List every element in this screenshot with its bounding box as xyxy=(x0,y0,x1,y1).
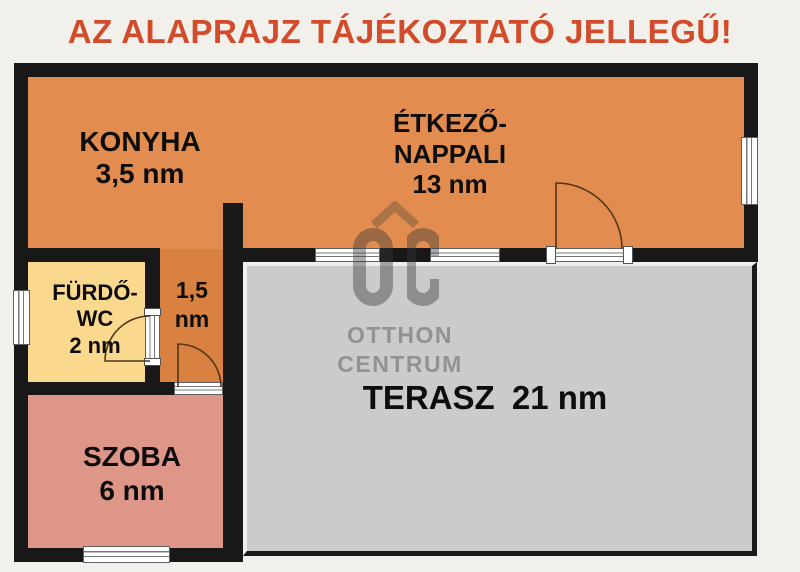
room-label-kozlekedo: 1,5 nm xyxy=(162,276,222,334)
watermark-text-otthon: OTTHON xyxy=(330,322,470,349)
floorplan-image: AZ ALAPRAJZ TÁJÉKOZTATÓ JELLEGŰ! KONYHA … xyxy=(0,0,800,572)
door-stop-furdo-bottom xyxy=(144,358,161,366)
room-label-konyha: KONYHA 3,5 nm xyxy=(40,126,240,190)
wall-hall-terasz xyxy=(223,203,243,562)
wall-top xyxy=(14,63,758,77)
room-label-terasz: TERASZ 21 nm xyxy=(320,379,650,417)
watermark-oc-logo-icon xyxy=(352,227,444,307)
door-jamb-nappali-left xyxy=(546,246,556,264)
door-jamb-nappali-right xyxy=(623,246,633,264)
room-area-furdo: 2 nm xyxy=(40,333,150,359)
room-name-szoba: SZOBA xyxy=(42,440,222,474)
window-nappali-right xyxy=(741,137,758,205)
room-name-furdo-line1: FÜRDŐ- xyxy=(40,280,150,306)
door-sill-nappali-terasz xyxy=(548,248,633,262)
room-name-konyha: KONYHA xyxy=(40,126,240,158)
disclaimer-title: AZ ALAPRAJZ TÁJÉKOZTATÓ JELLEGŰ! xyxy=(0,13,800,51)
room-name-etkezo-line2: NAPPALI xyxy=(365,139,535,170)
room-label-etkezo-nappali: ÉTKEZŐ- NAPPALI 13 nm xyxy=(365,108,535,200)
room-label-szoba: SZOBA 6 nm xyxy=(42,440,222,507)
room-name-etkezo-line1: ÉTKEZŐ- xyxy=(365,108,535,139)
watermark-text-centrum: CENTRUM xyxy=(330,351,470,378)
room-area-kozlekedo-line1: 1,5 xyxy=(162,276,222,305)
room-area-szoba: 6 nm xyxy=(42,474,222,508)
room-area-kozlekedo-line2: nm xyxy=(162,305,222,334)
wall-konyha-furdo xyxy=(14,248,160,262)
room-area-etkezo: 13 nm xyxy=(365,169,535,200)
window-szoba-bottom xyxy=(83,546,170,563)
room-area-konyha: 3,5 nm xyxy=(40,158,240,190)
door-sill-kozlekedo-szoba xyxy=(174,382,223,395)
room-label-furdo-wc: FÜRDŐ- WC 2 nm xyxy=(40,280,150,359)
room-area-terasz: 21 nm xyxy=(512,379,607,416)
watermark-roof-icon xyxy=(370,201,420,229)
window-furdo-left xyxy=(13,290,30,345)
room-name-furdo-line2: WC xyxy=(40,306,150,332)
wall-furdo-szoba xyxy=(14,382,174,395)
room-name-terasz: TERASZ xyxy=(363,379,495,416)
